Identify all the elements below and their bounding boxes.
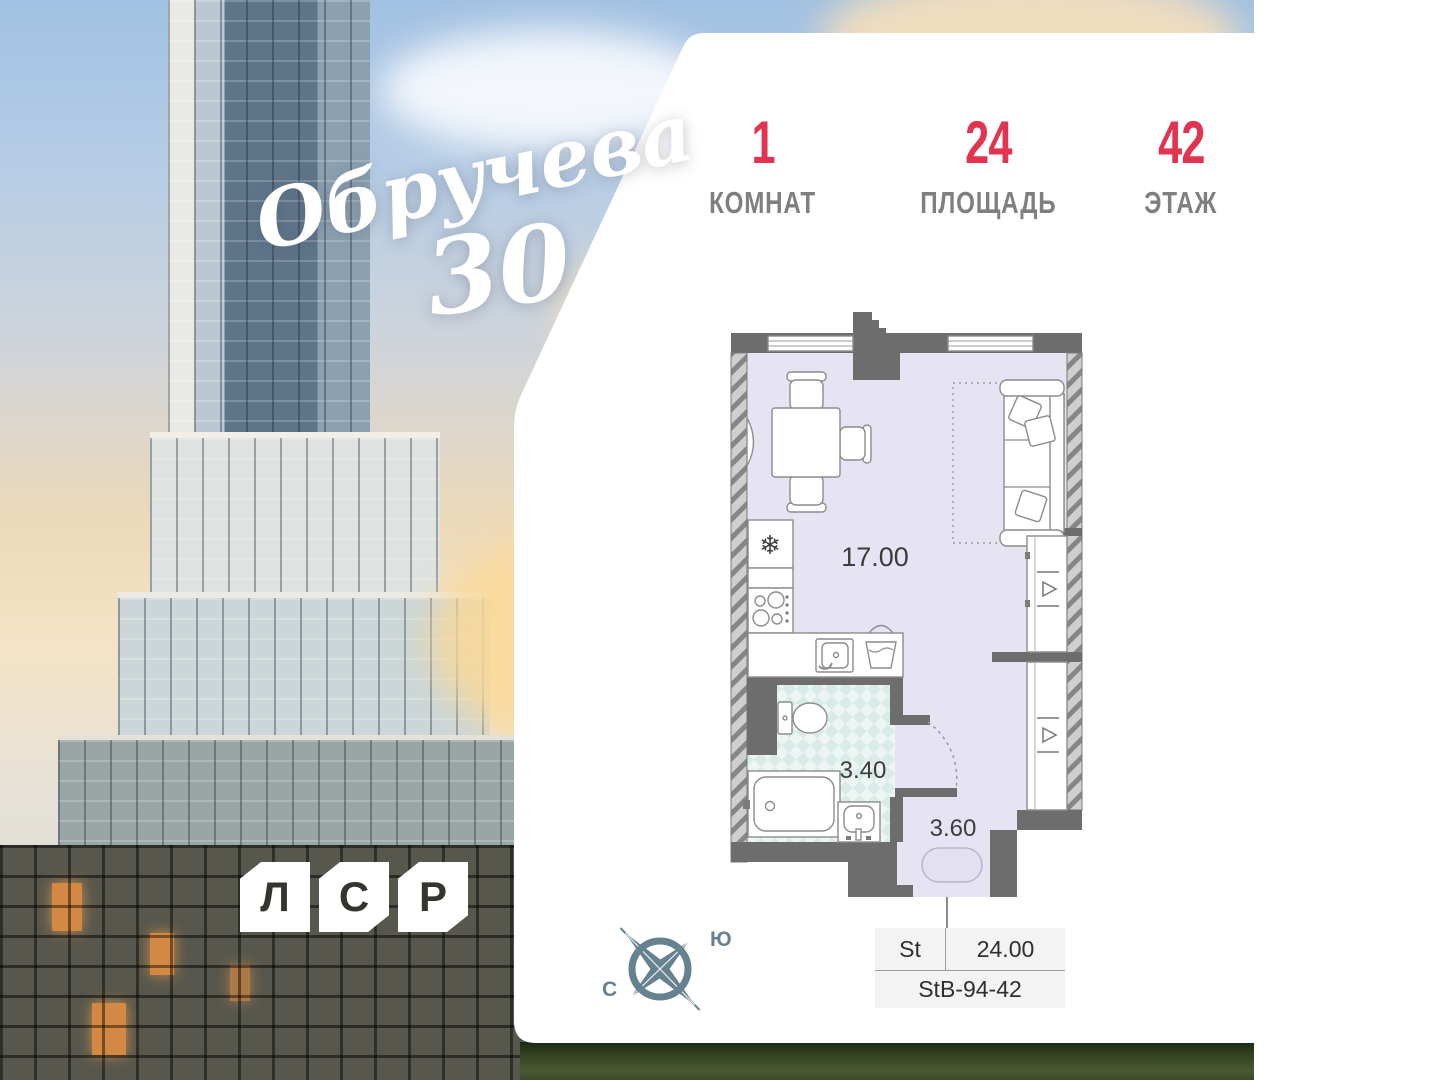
window <box>948 336 1033 351</box>
stat-floor-label: ЭТАЖ <box>1145 185 1218 221</box>
basin <box>866 642 896 668</box>
window <box>768 336 853 351</box>
unit-info-table: St 24.00 StB-94-42 <box>875 928 1065 1008</box>
unit-code: StB-94-42 <box>875 971 1065 1008</box>
rug <box>922 848 982 882</box>
bathtub <box>748 771 840 837</box>
stat-area: 24 ПЛОЩАДЬ <box>898 108 1078 221</box>
bath-faucet <box>743 800 750 809</box>
project-logo-number: 30 <box>418 199 578 341</box>
stat-floor: 42 ЭТАЖ <box>1121 108 1241 221</box>
compass-south-label: Ю <box>710 928 732 951</box>
stat-area-label: ПЛОЩАДЬ <box>920 185 1056 221</box>
stat-rooms: 1 КОМНАТ <box>693 108 833 221</box>
snowflake-icon: ❄ <box>759 530 781 560</box>
area-label-bathroom: 3.40 <box>840 757 887 784</box>
stat-rooms-label: КОМНАТ <box>710 185 817 221</box>
area-label-main: 17.00 <box>841 542 909 572</box>
area-label-hall: 3.60 <box>930 815 977 842</box>
developer-letter-tile: Р <box>398 862 468 932</box>
compass-north-label: С <box>602 978 617 1001</box>
stat-area-value: 24 <box>965 108 1012 177</box>
stat-rooms-value: 1 <box>751 108 774 177</box>
developer-logo: Л С Р <box>240 862 468 932</box>
unit-type: St <box>875 928 946 970</box>
stat-floor-value: 42 <box>1158 108 1205 177</box>
developer-letter-tile: С <box>319 862 389 932</box>
compass-rose <box>592 912 728 1027</box>
unit-area: 24.00 <box>946 928 1065 970</box>
compass: Ю С <box>592 912 742 1027</box>
floor-plan: ❄ <box>690 300 1110 940</box>
wardrobes <box>1025 536 1067 810</box>
developer-letter-tile: Л <box>240 862 310 932</box>
